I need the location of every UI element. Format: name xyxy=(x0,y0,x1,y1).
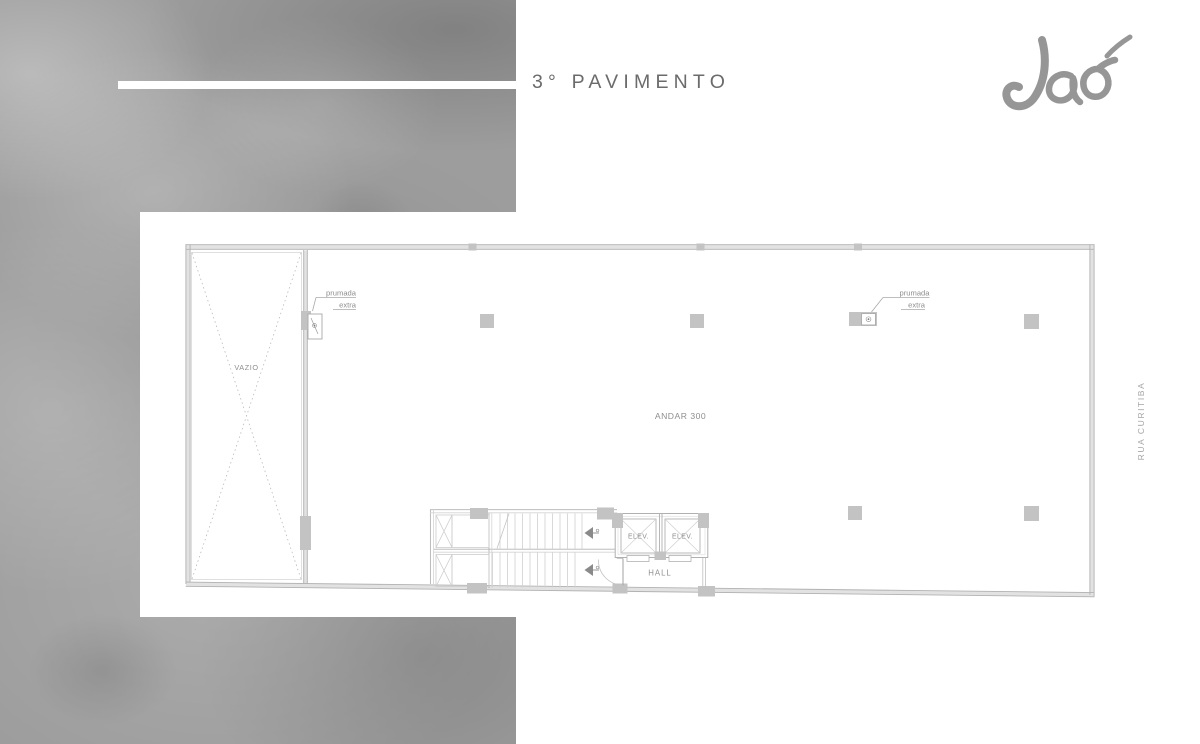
void-label: VAZIO xyxy=(234,363,258,372)
floor-plan: prumada extra prumada extra xyxy=(176,236,1106,606)
page-title: 3° PAVIMENTO xyxy=(532,71,730,94)
brand-logo xyxy=(990,18,1170,128)
riser-right: prumada extra xyxy=(849,289,930,327)
stair-direction-arrow-down xyxy=(585,564,600,576)
elevator-door-1 xyxy=(627,556,649,562)
logo-script-icon xyxy=(1006,37,1130,106)
void-area xyxy=(192,253,302,580)
elevator-door-2 xyxy=(669,556,691,562)
stair-direction-arrow-up xyxy=(585,527,600,539)
header-divider-bar xyxy=(118,81,516,89)
stair-core xyxy=(430,510,621,588)
riser-left-label-line2: extra xyxy=(339,301,357,310)
elevator-1-label: ELEV. xyxy=(628,534,649,541)
street-label: RUA CURITIBA xyxy=(1136,369,1150,473)
riser-left: prumada extra xyxy=(301,289,357,340)
elevator-2-label: ELEV. xyxy=(672,534,693,541)
stair-treads xyxy=(493,514,583,588)
riser-right-label-line2: extra xyxy=(908,301,926,310)
floor-label: ANDAR 300 xyxy=(655,411,706,421)
hall-door xyxy=(598,558,623,585)
riser-right-label-line1: prumada xyxy=(900,289,931,298)
hall-label: HALL xyxy=(648,569,672,578)
riser-left-label-line1: prumada xyxy=(326,289,357,298)
